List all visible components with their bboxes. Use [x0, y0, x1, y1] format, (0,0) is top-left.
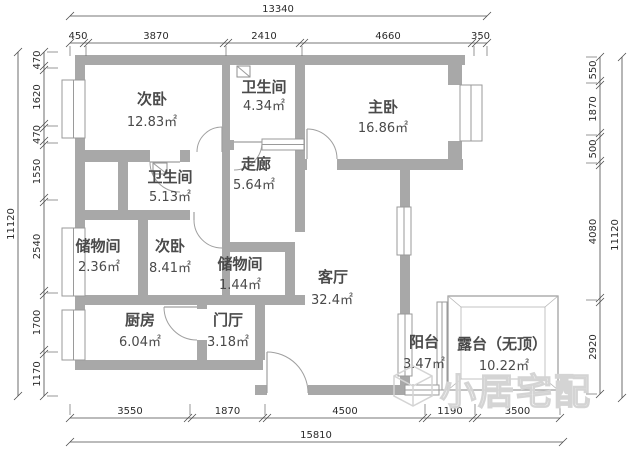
wall-segment [337, 159, 463, 170]
dim-label: 1550 [32, 159, 43, 184]
wall-segment [75, 150, 150, 162]
wall-segment [197, 305, 207, 309]
room-area: 12.83㎡ [127, 115, 177, 130]
dim-label: 11120 [610, 219, 621, 251]
room-name: 走廊 [241, 155, 271, 173]
watermark-text: 小居宅配 [440, 371, 592, 413]
wall-segment [75, 360, 263, 370]
room-name: 露台（无顶） [457, 335, 547, 353]
room-name: 阳台 [409, 333, 439, 351]
dim-label: 1870 [215, 406, 240, 417]
wall-segment [138, 220, 148, 295]
wall-segment [75, 210, 190, 220]
dim-label: 1700 [32, 310, 43, 335]
dim-label: 1620 [32, 84, 43, 109]
room-name: 次卧 [137, 90, 167, 108]
wall-segment [285, 252, 295, 295]
room-name: 厨房 [125, 311, 155, 329]
dim-label: 3550 [117, 406, 142, 417]
dim-label: 450 [68, 31, 87, 42]
dim-label: 3870 [143, 31, 168, 42]
wall-segment [222, 140, 234, 150]
dim-label: 1170 [32, 361, 43, 386]
wall-segment [75, 295, 305, 305]
dim-label: 4660 [375, 31, 400, 42]
room-name: 卫生间 [147, 168, 192, 186]
dim-label: 2920 [588, 334, 599, 359]
wall-segment [222, 65, 230, 150]
wall-segment [75, 55, 465, 65]
room-area: 5.64㎡ [233, 178, 275, 193]
room-area: 32.4㎡ [311, 293, 353, 308]
dim-label: 500 [588, 139, 599, 158]
wall-segment [180, 150, 190, 162]
dim-label: 470 [32, 125, 43, 144]
room-area: 1.44㎡ [219, 278, 261, 293]
room-name: 储物间 [75, 237, 120, 255]
dim-label: 550 [588, 60, 599, 79]
wall-segment [222, 150, 230, 295]
room-name: 主卧 [368, 98, 398, 116]
floor-plan-svg: 次卧 12.83㎡ 卫生间 4.34㎡ 主卧 16.86㎡ 卫生间 5.13㎡ … [0, 0, 640, 470]
room-name: 门厅 [213, 311, 243, 329]
dim-label: 470 [32, 50, 43, 69]
dim-label: 4080 [588, 219, 599, 244]
room-area: 3.18㎡ [207, 335, 249, 350]
room-area: 16.86㎡ [358, 121, 408, 136]
room-area: 6.04㎡ [119, 335, 161, 350]
room-name: 储物间 [217, 255, 262, 273]
wall-segment [400, 170, 410, 207]
dim-label: 15810 [300, 430, 332, 441]
wall-segment [197, 340, 207, 360]
dim-label: 11120 [6, 208, 17, 240]
dim-label: 13340 [262, 4, 294, 15]
room-name: 客厅 [317, 268, 348, 286]
wall-segment [448, 63, 462, 85]
room-area: 4.34㎡ [243, 99, 285, 114]
wall-segment [255, 385, 267, 395]
wall-segment [255, 305, 265, 360]
room-area: 5.13㎡ [149, 190, 191, 205]
room-area: 8.41㎡ [149, 261, 191, 276]
dim-label: 1870 [588, 96, 599, 121]
wall-segment [400, 255, 410, 302]
dim-label: 2410 [251, 31, 276, 42]
wall-segment [400, 302, 410, 314]
room-area: 2.36㎡ [78, 260, 120, 275]
dim-label: 2540 [32, 234, 43, 259]
dim-label: 4500 [332, 406, 357, 417]
dim-label: 350 [471, 31, 490, 42]
room-name: 卫生间 [241, 78, 286, 96]
wall-segment [118, 162, 128, 210]
floor-plan-canvas: 次卧 12.83㎡ 卫生间 4.34㎡ 主卧 16.86㎡ 卫生间 5.13㎡ … [0, 0, 640, 470]
room-name: 次卧 [155, 237, 185, 255]
wall-segment [75, 55, 85, 80]
wall-segment [222, 242, 295, 252]
room-area: 3.47㎡ [403, 357, 445, 372]
